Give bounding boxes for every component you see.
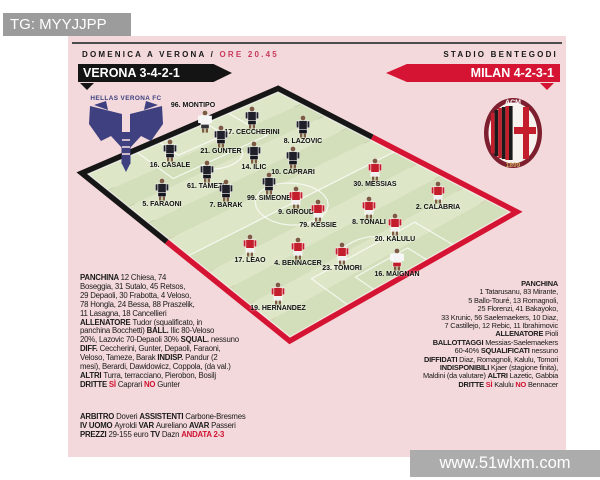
- player-figure: [368, 158, 382, 181]
- player-label: 96. MONTIPO: [171, 102, 215, 110]
- player-figure: [219, 179, 233, 202]
- player-figure: [155, 178, 169, 201]
- player-figure: [388, 213, 402, 236]
- player-figure: [431, 181, 445, 204]
- player-figure: [271, 282, 285, 305]
- player-19-hernandez: 19. HERNANDEZ: [238, 282, 318, 313]
- panel-line: DRITTE SÌ Kalulu NO Bennacer: [423, 381, 558, 389]
- verona-notes-panel: PANCHINA 12 Chiesa, 74Boseggia, 31 Sutal…: [80, 274, 239, 390]
- player-2-calabria: 2. CALABRIA: [398, 181, 478, 212]
- player-label: 2. CALABRIA: [416, 204, 460, 212]
- player-figure: [390, 248, 404, 271]
- player-label: 7. BARAK: [209, 202, 242, 210]
- player-figure: [311, 199, 325, 222]
- verona-crest-title: HELLAS VERONA FC: [90, 95, 161, 102]
- milan-notes-panel: PANCHINA1 Tatarusanu, 83 Mirante,5 Ballo…: [423, 280, 558, 389]
- player-label: 30. MESSIAS: [353, 181, 396, 189]
- milan-crest-stripes: [491, 106, 513, 160]
- tg-watermark-tag: TG: MYYJJPP: [3, 13, 131, 36]
- panel-line: ARBITRO Doveri ASSISTENTI Carbone-Bresme…: [80, 412, 246, 421]
- player-16-maignan: 16. MAIGNAN: [357, 248, 437, 279]
- milan-crest-year: 1899: [506, 162, 521, 169]
- player-figure: [163, 139, 177, 162]
- panel-line: PREZZI 29-155 euro TV Dazn ANDATA 2-3: [80, 430, 246, 439]
- player-label: 19. HERNANDEZ: [250, 305, 306, 313]
- player-figure: [286, 146, 300, 169]
- player-label: 23. TOMORI: [322, 265, 362, 273]
- panel-line: DRITTE SÌ Caprari NO Gunter: [80, 381, 239, 390]
- site-watermark: www.51wlxm.com: [410, 450, 600, 477]
- player-7-barak: 7. BARAK: [186, 179, 266, 210]
- panel-line: IV UOMO Ayroldi VAR Aureliano AVAR Passe…: [80, 421, 246, 430]
- match-info-panel: ARBITRO Doveri ASSISTENTI Carbone-Bresme…: [80, 412, 246, 439]
- player-label: 16. MAIGNAN: [374, 271, 419, 279]
- player-20-kalulu: 20. KALULU: [355, 213, 435, 244]
- milan-crest: ACM 1899: [482, 95, 544, 176]
- player-figure: [243, 234, 257, 257]
- milan-crest-acronym: ACM: [505, 100, 521, 107]
- page: { "overlay": { "tag": "TG: MYYJJPP", "si…: [0, 0, 600, 480]
- player-figure: [296, 115, 310, 138]
- player-figure: [335, 242, 349, 265]
- player-label: 5. FARAONI: [142, 201, 181, 209]
- newspaper-sheet: DOMENICA A VERONA / ORE 20.45 STADIO BEN…: [68, 36, 566, 457]
